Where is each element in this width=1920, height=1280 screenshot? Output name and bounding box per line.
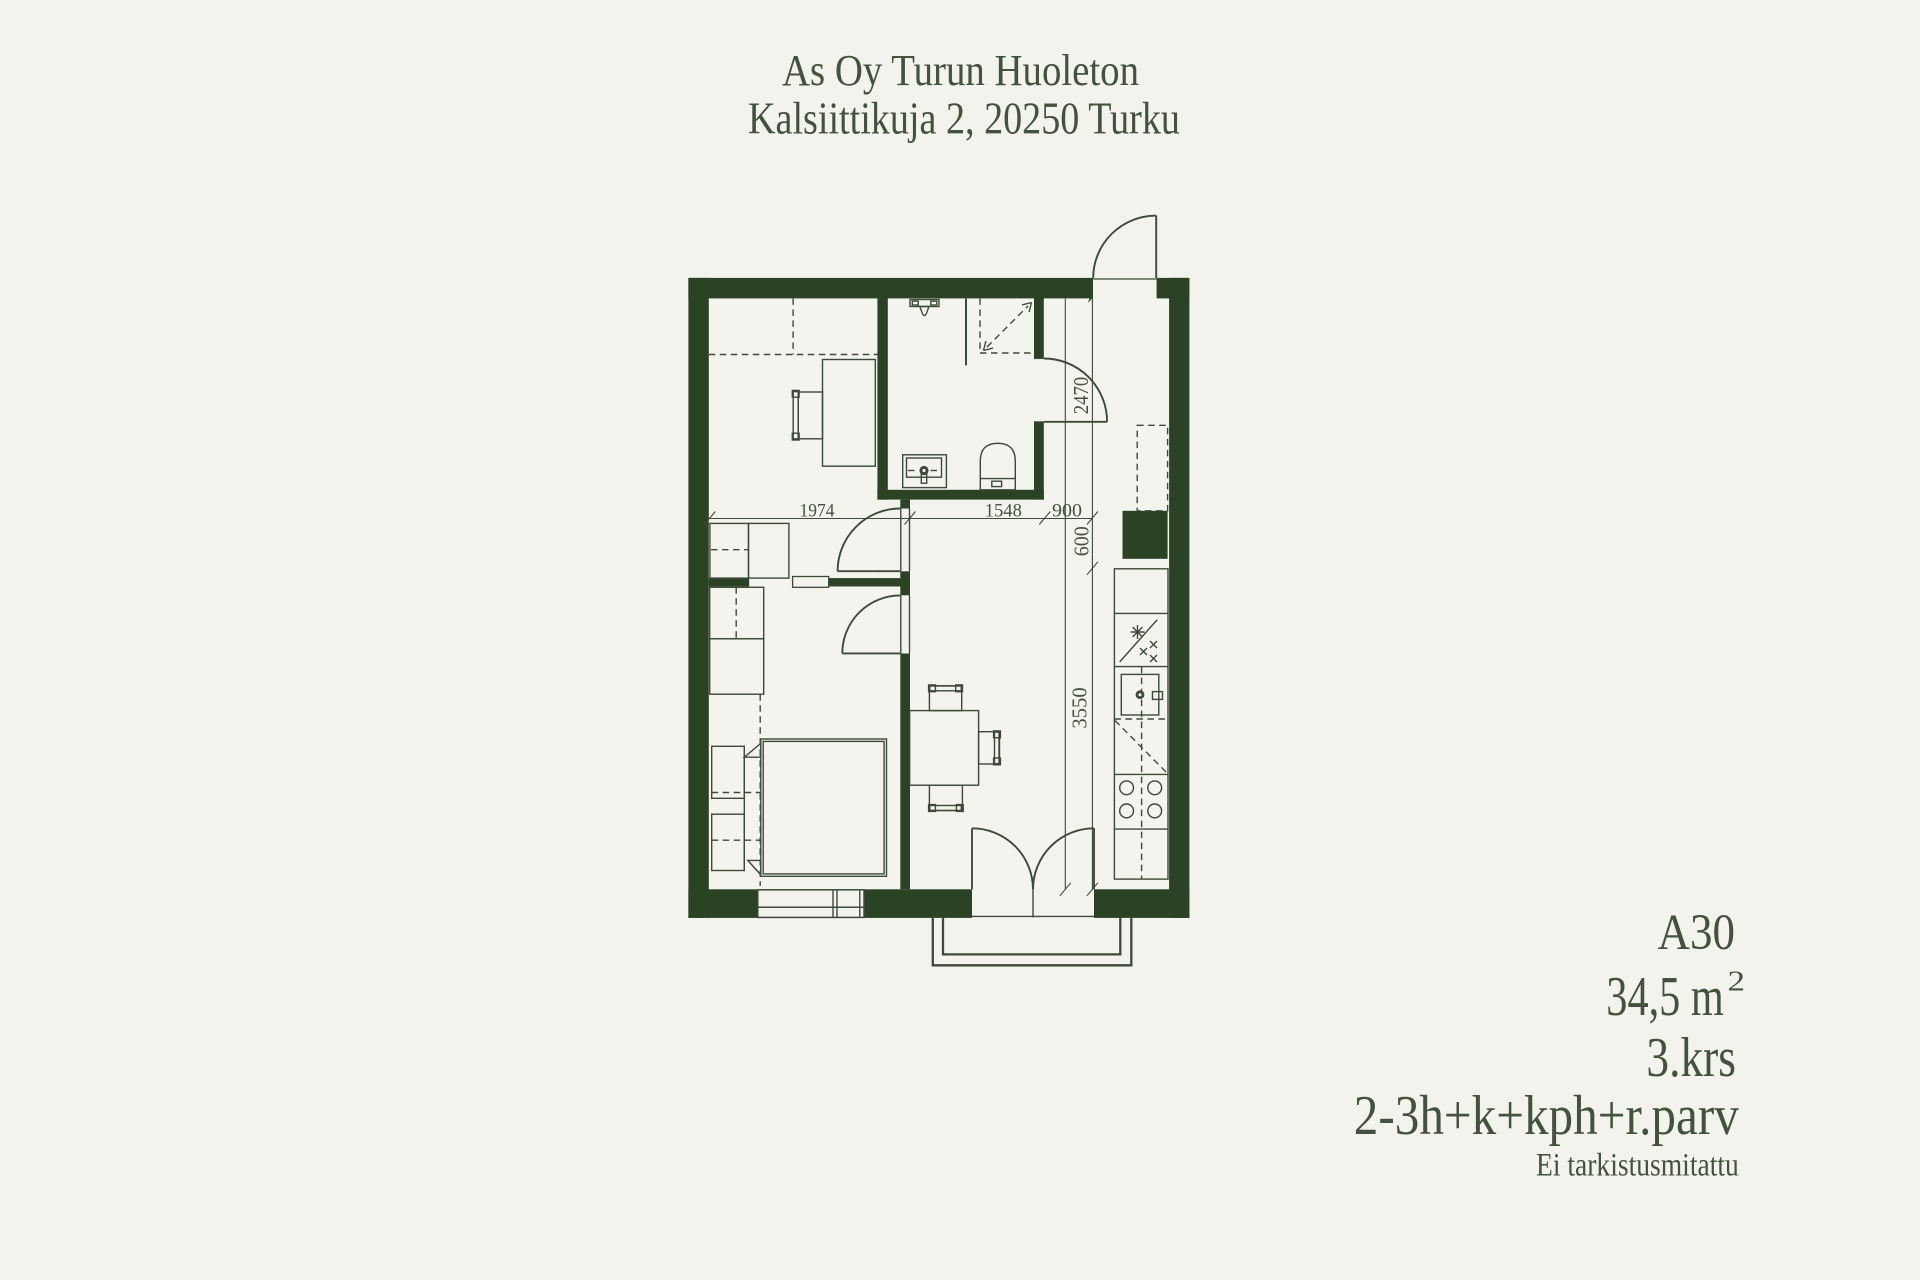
svg-text:2: 2 — [1728, 966, 1746, 997]
svg-text:A30: A30 — [1658, 905, 1736, 961]
svg-text:1974: 1974 — [800, 501, 835, 522]
svg-text:600: 600 — [1069, 526, 1093, 556]
svg-text:1548: 1548 — [985, 501, 1022, 522]
svg-text:34,5 m: 34,5 m — [1606, 966, 1724, 1028]
svg-text:3.krs: 3.krs — [1646, 1027, 1736, 1089]
svg-text:As Oy Turun Huoleton: As Oy Turun Huoleton — [782, 46, 1139, 95]
svg-text:2470: 2470 — [1069, 377, 1093, 415]
svg-text:3550: 3550 — [1068, 687, 1092, 728]
svg-text:900: 900 — [1052, 501, 1082, 522]
svg-text:2-3h+k+kph+r.parv: 2-3h+k+kph+r.parv — [1354, 1085, 1739, 1147]
svg-text:Ei tarkistusmitattu: Ei tarkistusmitattu — [1536, 1147, 1739, 1183]
svg-text:Kalsiittikuja 2, 20250 Turku: Kalsiittikuja 2, 20250 Turku — [748, 94, 1180, 144]
